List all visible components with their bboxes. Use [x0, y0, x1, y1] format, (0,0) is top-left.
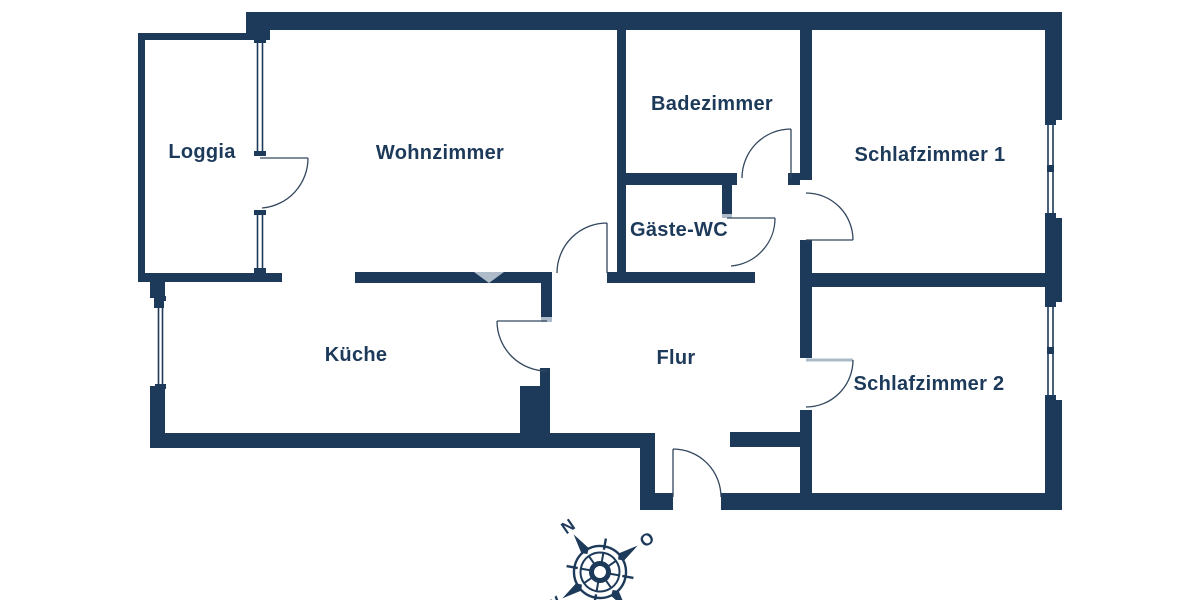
floor-plan-svg: Loggia Wohnzimmer Badezimmer Schlafzimme…: [0, 0, 1200, 600]
window-loggia: [254, 38, 266, 273]
compass-points: [536, 508, 664, 600]
door-gaeste-wc: [727, 218, 775, 266]
room-label-loggia: Loggia: [168, 141, 236, 163]
room-label-badezimmer: Badezimmer: [651, 93, 773, 115]
window-schlafzimmer-1: [1045, 120, 1056, 218]
room-label-gaeste-wc: Gäste-WC: [630, 219, 728, 241]
room-label-flur: Flur: [657, 347, 696, 369]
door-kueche: [497, 321, 547, 371]
window-kueche: [155, 296, 166, 389]
door-schlafzimmer-1: [806, 193, 853, 240]
compass-letter-w: W: [542, 592, 567, 600]
outer-walls: [150, 12, 1062, 510]
compass-hub: [588, 560, 612, 584]
window-schlafzimmer-2: [1045, 302, 1056, 400]
room-label-schlafzimmer-1: Schlafzimmer 1: [855, 144, 1006, 166]
door-arc-schlafzimmer-2: [806, 360, 853, 407]
door-badezimmer: [742, 129, 791, 178]
room-label-wohnzimmer: Wohnzimmer: [376, 142, 504, 164]
compass-letter-o: O: [636, 528, 658, 551]
room-label-kueche: Küche: [325, 344, 388, 366]
door-wohnzimmer: [557, 223, 607, 273]
room-label-schlafzimmer-2: Schlafzimmer 2: [854, 373, 1005, 395]
room-labels: Loggia Wohnzimmer Badezimmer Schlafzimme…: [168, 93, 1005, 395]
compass-letter-n: N: [558, 515, 579, 538]
floor-plan-page: Loggia Wohnzimmer Badezimmer Schlafzimme…: [0, 0, 1200, 600]
door-loggia: [260, 158, 308, 208]
door-entrance: [673, 449, 721, 497]
